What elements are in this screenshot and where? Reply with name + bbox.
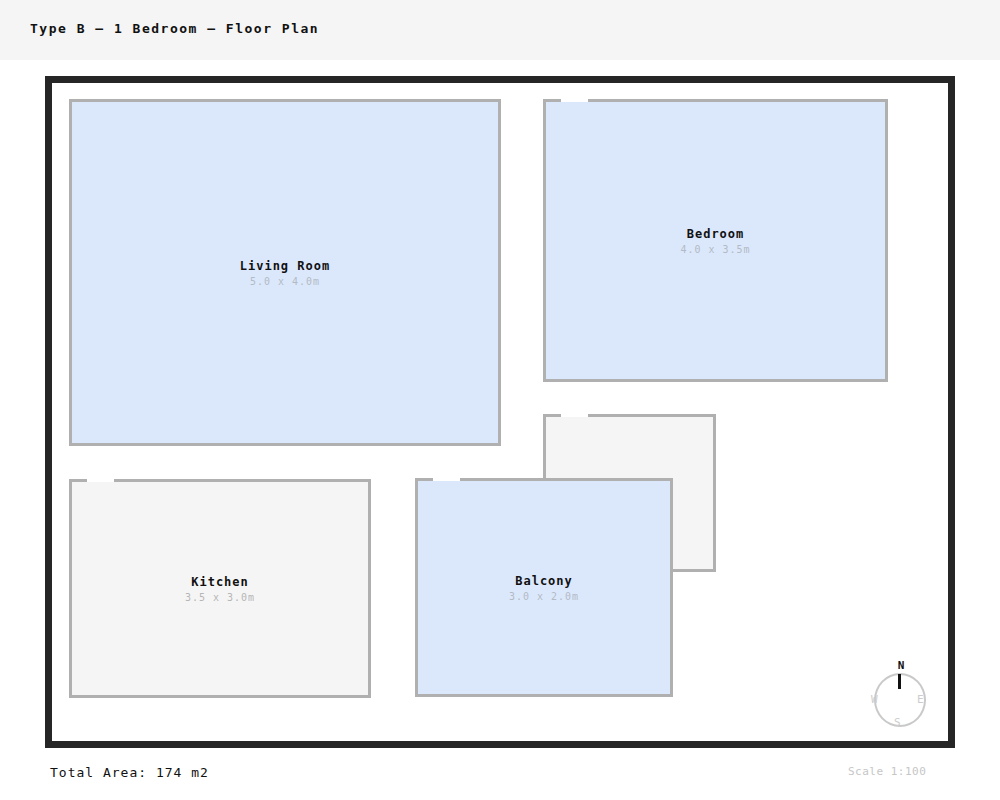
room-dimensions: 4.0 x 3.5m [680, 244, 750, 255]
door-opening [561, 99, 588, 102]
page-title: Type B – 1 Bedroom – Floor Plan [30, 21, 319, 36]
room-balcony: Balcony 3.0 x 2.0m [415, 478, 673, 697]
room-dimensions: 3.0 x 2.0m [509, 591, 579, 602]
compass-west-label: W [871, 693, 878, 706]
room-name: Living Room [240, 259, 330, 273]
room-label: Kitchen 3.5 x 3.0m [185, 575, 255, 603]
room-name: Kitchen [191, 575, 249, 589]
room-dimensions: 5.0 x 4.0m [250, 276, 320, 287]
header-bar: Type B – 1 Bedroom – Floor Plan [0, 0, 1000, 60]
compass-east-label: E [917, 693, 924, 706]
door-opening [561, 414, 588, 417]
compass-north-label: N [894, 659, 908, 672]
door-opening [433, 478, 460, 481]
compass-south-label: S [894, 716, 901, 729]
room-name: Bedroom [687, 227, 745, 241]
room-bedroom: Bedroom 4.0 x 3.5m [543, 99, 888, 382]
room-label: Balcony 3.0 x 2.0m [509, 574, 579, 602]
room-label: Living Room 5.0 x 4.0m [240, 259, 330, 287]
compass-needle-icon [898, 674, 901, 689]
door-opening [87, 479, 114, 482]
total-area-text: Total Area: 174 m2 [50, 765, 209, 780]
room-label: Bedroom 4.0 x 3.5m [680, 227, 750, 255]
room-name: Balcony [515, 574, 573, 588]
room-living-room: Living Room 5.0 x 4.0m [69, 99, 501, 446]
room-kitchen: Kitchen 3.5 x 3.0m [69, 479, 371, 698]
room-dimensions: 3.5 x 3.0m [185, 592, 255, 603]
scale-text: Scale 1:100 [848, 765, 926, 778]
